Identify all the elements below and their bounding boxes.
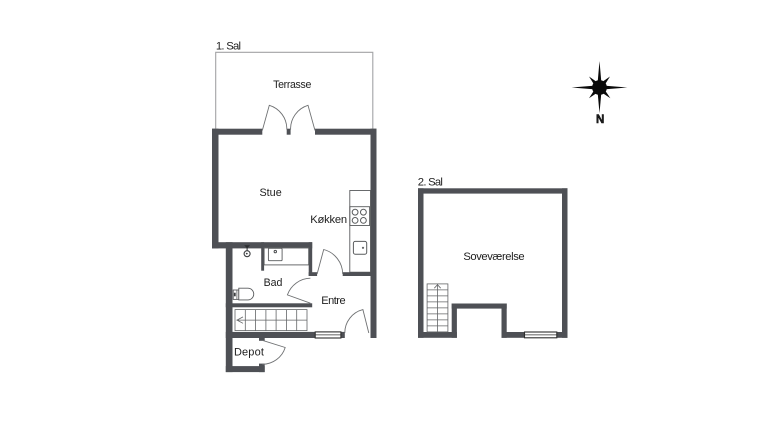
svg-text:Entre: Entre [321, 295, 345, 307]
svg-text:1. Sal: 1. Sal [216, 40, 241, 52]
svg-text:Terrasse: Terrasse [273, 79, 311, 91]
svg-text:Depot: Depot [234, 347, 264, 359]
svg-text:Soveværelse: Soveværelse [463, 251, 524, 263]
svg-text:N: N [596, 114, 604, 126]
svg-text:Bad: Bad [264, 277, 283, 289]
svg-text:Stue: Stue [259, 187, 281, 199]
svg-text:2. Sal: 2. Sal [418, 176, 443, 188]
svg-text:Køkken: Køkken [310, 214, 347, 226]
